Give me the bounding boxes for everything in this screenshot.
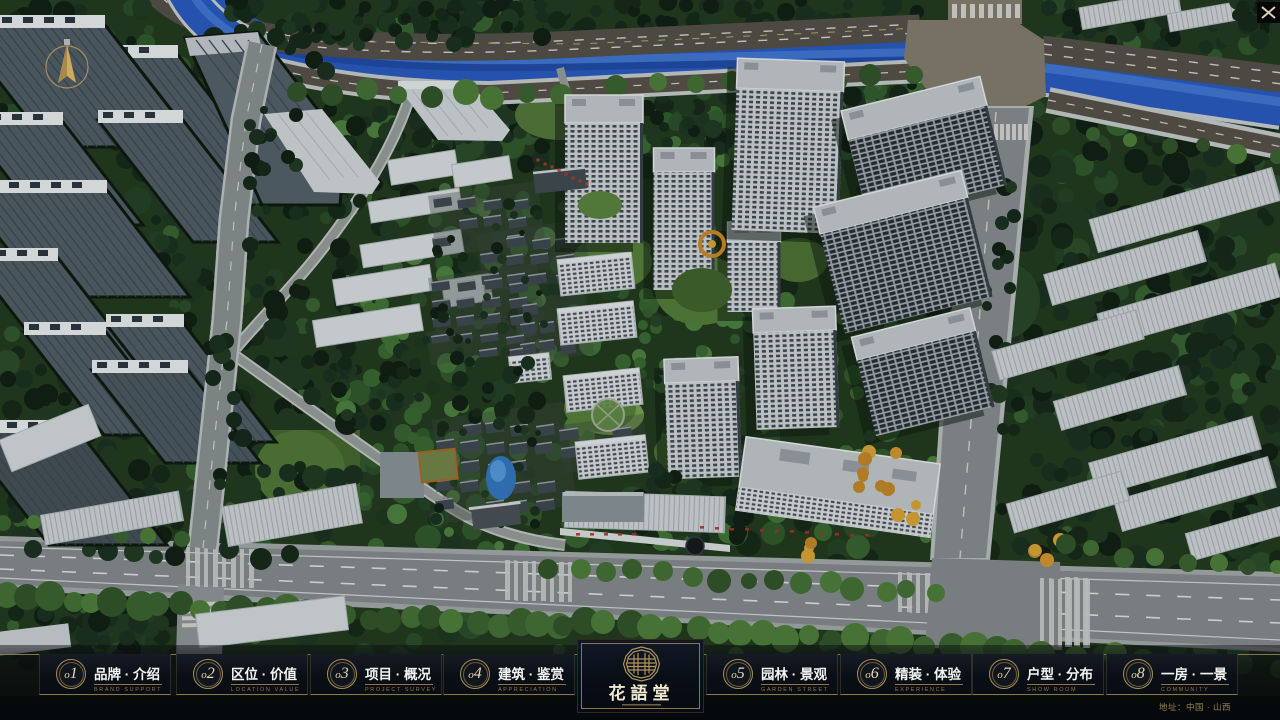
svg-text:花語堂: 花語堂 bbox=[609, 683, 675, 703]
